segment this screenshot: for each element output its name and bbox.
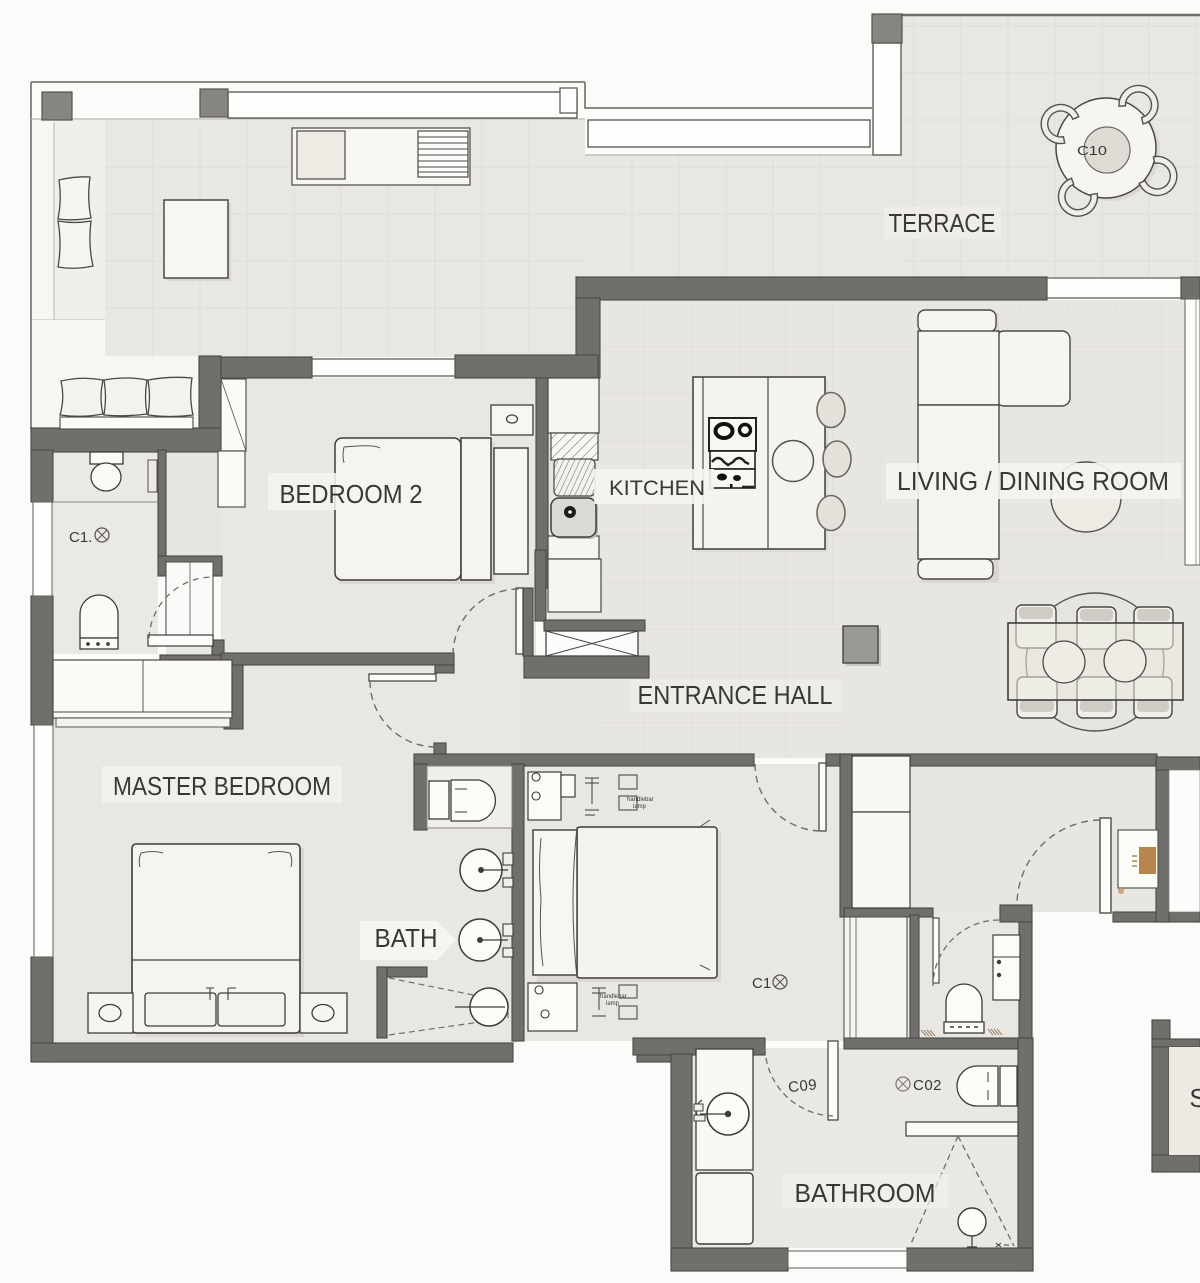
svg-text:C02: C02 — [913, 1077, 942, 1094]
svg-text:KITCHEN: KITCHEN — [609, 477, 705, 500]
svg-text:LIVING / DINING ROOM: LIVING / DINING ROOM — [897, 466, 1169, 496]
svg-text:MASTER BEDROOM: MASTER BEDROOM — [113, 771, 331, 801]
svg-text:lamp: lamp — [606, 1001, 620, 1007]
svg-text:C10: C10 — [1077, 143, 1107, 158]
svg-text:lamp: lamp — [633, 804, 647, 810]
svg-text:ENTRANCE HALL: ENTRANCE HALL — [638, 680, 833, 710]
svg-text:handlebar: handlebar — [627, 797, 654, 803]
svg-text:handlebar: handlebar — [600, 994, 627, 1000]
svg-text:C1: C1 — [752, 975, 771, 992]
svg-text:C1.: C1. — [69, 529, 92, 546]
svg-text:BATH: BATH — [375, 923, 438, 953]
svg-text:S: S — [1189, 1083, 1200, 1113]
svg-text:C09: C09 — [787, 1076, 818, 1096]
svg-text:BATHROOM: BATHROOM — [795, 1178, 936, 1208]
svg-text:TERRACE: TERRACE — [889, 208, 996, 238]
svg-text:BEDROOM 2: BEDROOM 2 — [280, 479, 423, 509]
